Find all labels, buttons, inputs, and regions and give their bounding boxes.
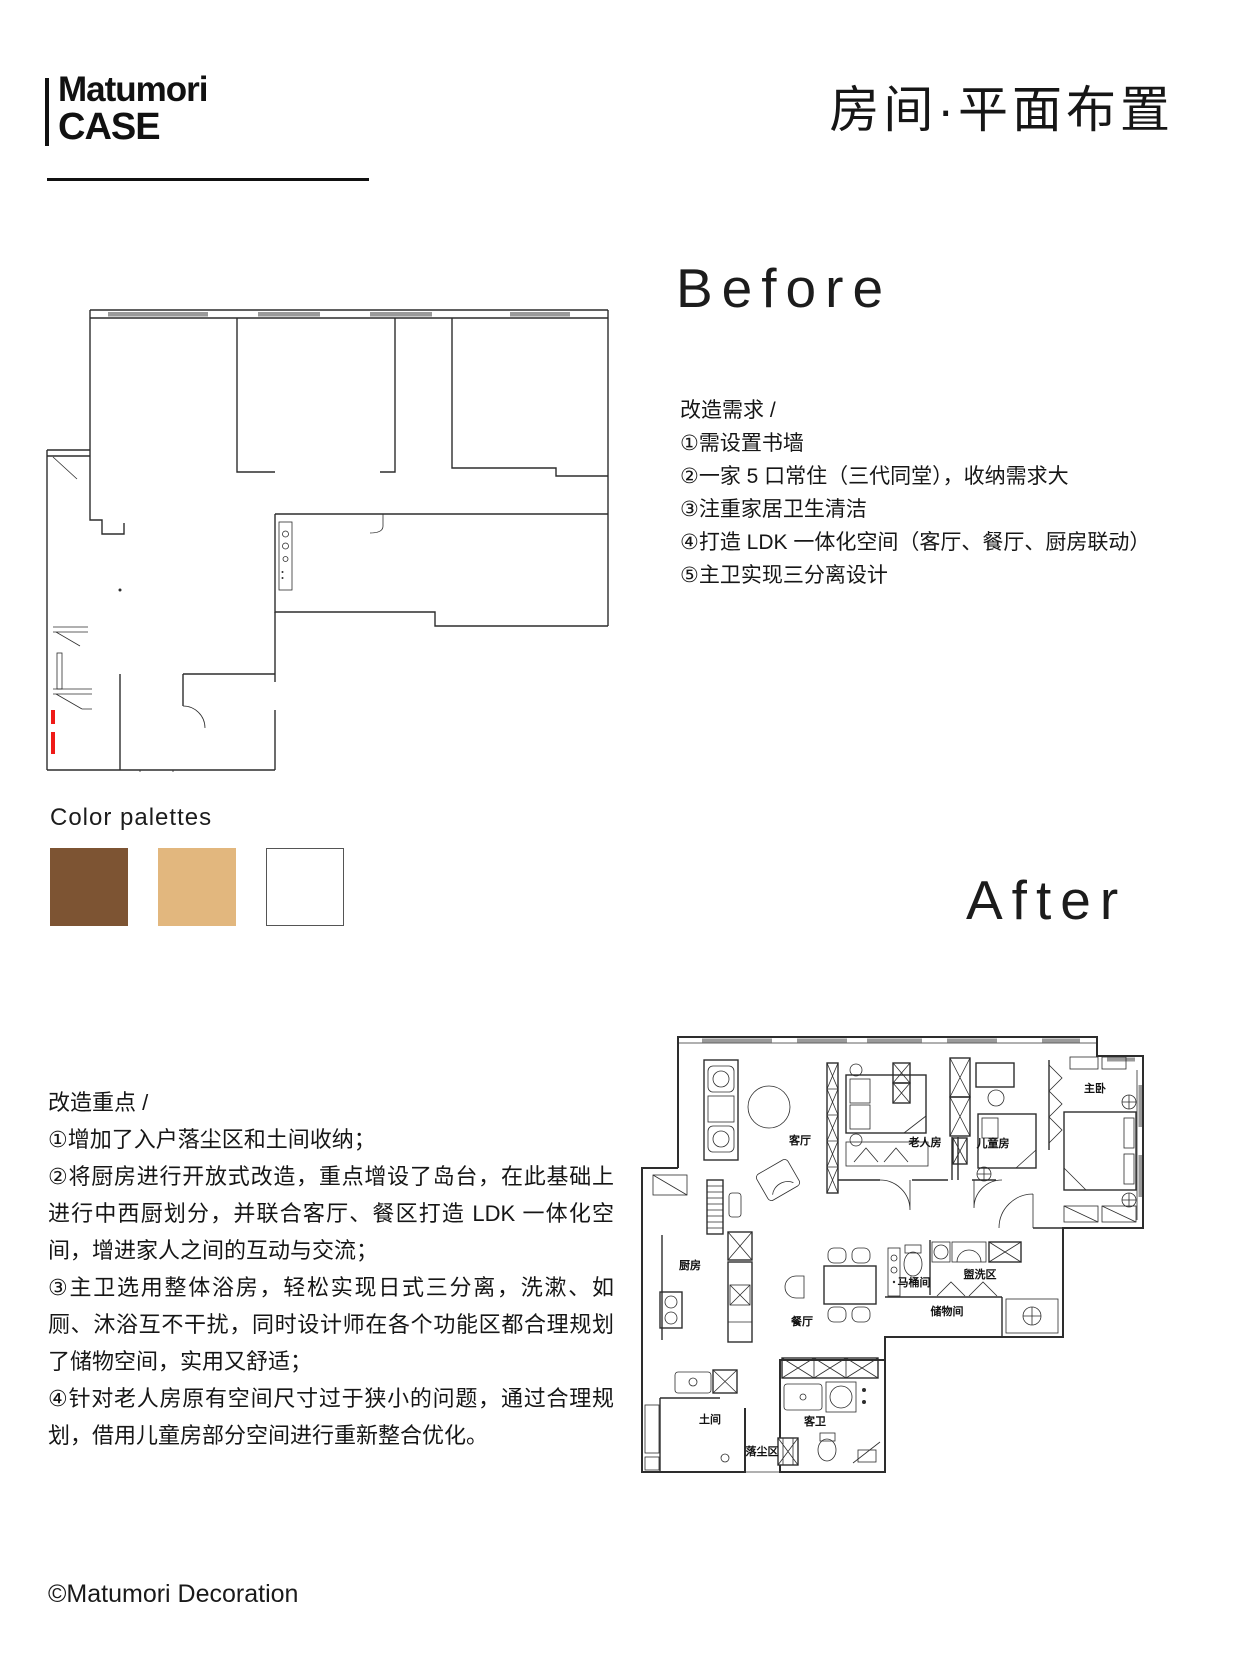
palette-label: Color palettes (50, 804, 212, 832)
swatch-brown (50, 848, 128, 926)
logo-line2: CASE (58, 108, 160, 146)
room-label-dining: 餐厅 (790, 1314, 813, 1328)
before-floor-plan (40, 282, 620, 772)
room-label-elder: 老人房 (908, 1135, 942, 1149)
room-label-mud: 土间 (699, 1412, 721, 1426)
room-label-dust: 落尘区 (746, 1444, 779, 1458)
logo-underline (47, 178, 369, 181)
page-title: 房间·平面布置 (829, 70, 1174, 142)
room-label-master: 主卧 (1084, 1081, 1106, 1095)
room-label-storage: 储物间 (931, 1304, 964, 1318)
room-label-kids: 儿童房 (976, 1136, 1010, 1150)
room-label-guest-bath: 客卫 (803, 1414, 826, 1428)
swatch-white (266, 848, 344, 926)
color-palette (50, 848, 344, 926)
logo-line1: Matumori (58, 72, 208, 107)
swatch-tan (158, 848, 236, 926)
after-heading: After (966, 868, 1127, 932)
room-label-living: 客厅 (788, 1133, 811, 1147)
room-label-toilet: 马桶间 (898, 1275, 931, 1289)
room-label-kitchen: 厨房 (679, 1258, 701, 1272)
logo-bar (45, 78, 49, 146)
renovation-requirements: 改造需求 / ①需设置书墙 ②一家 5 口常住（三代同堂），收纳需求大 ③注重家… (680, 394, 1160, 592)
after-floor-plan: 客厅 老人房 儿童房 主卧 厨房 餐厅 马桶间 盥洗区 储物间 土间 落尘区 客… (612, 1030, 1162, 1480)
before-heading: Before (676, 256, 892, 320)
renovation-highlights: 改造重点 / ①增加了入户落尘区和土间收纳； ②将厨房进行开放式改造，重点增设了… (48, 1084, 614, 1454)
room-label-wash: 盥洗区 (964, 1267, 997, 1281)
copyright: ©Matumori Decoration (48, 1580, 298, 1609)
case-page: Matumori CASE 房间·平面布置 Before 改造需求 / ①需设置… (0, 0, 1240, 1660)
